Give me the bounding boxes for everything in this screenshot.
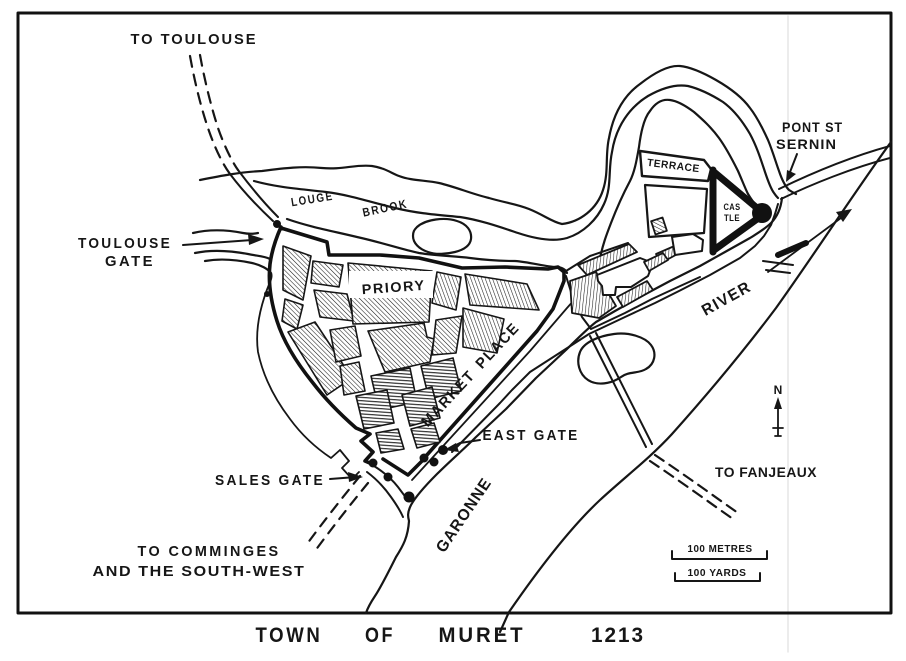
svg-text:EAST GATE: EAST GATE	[483, 427, 580, 444]
svg-text:TOWN: TOWN	[256, 624, 323, 647]
svg-text:SERNIN: SERNIN	[776, 136, 837, 152]
svg-text:TLE: TLE	[724, 213, 740, 224]
svg-text:GATE: GATE	[105, 253, 155, 270]
svg-text:MURET: MURET	[439, 624, 526, 647]
svg-text:1213: 1213	[591, 624, 645, 647]
svg-text:TO FANJEAUX: TO FANJEAUX	[715, 464, 817, 480]
svg-text:OF: OF	[365, 624, 395, 647]
svg-text:TOULOUSE: TOULOUSE	[78, 235, 172, 252]
svg-text:RIVER: RIVER	[699, 279, 754, 320]
svg-text:SALES GATE: SALES GATE	[215, 472, 325, 489]
svg-text:CAS: CAS	[724, 202, 741, 213]
svg-text:100 METRES: 100 METRES	[688, 544, 753, 555]
svg-text:GARONNE: GARONNE	[433, 475, 495, 556]
svg-text:PONT ST: PONT ST	[782, 119, 843, 135]
svg-text:100 YARDS: 100 YARDS	[688, 568, 747, 579]
svg-text:N: N	[774, 383, 783, 397]
svg-text:TO COMMINGES: TO COMMINGES	[138, 543, 281, 560]
svg-text:AND THE SOUTH-WEST: AND THE SOUTH-WEST	[93, 563, 306, 580]
svg-text:TO TOULOUSE: TO TOULOUSE	[131, 31, 258, 48]
svg-text:LOUGE: LOUGE	[290, 189, 335, 210]
